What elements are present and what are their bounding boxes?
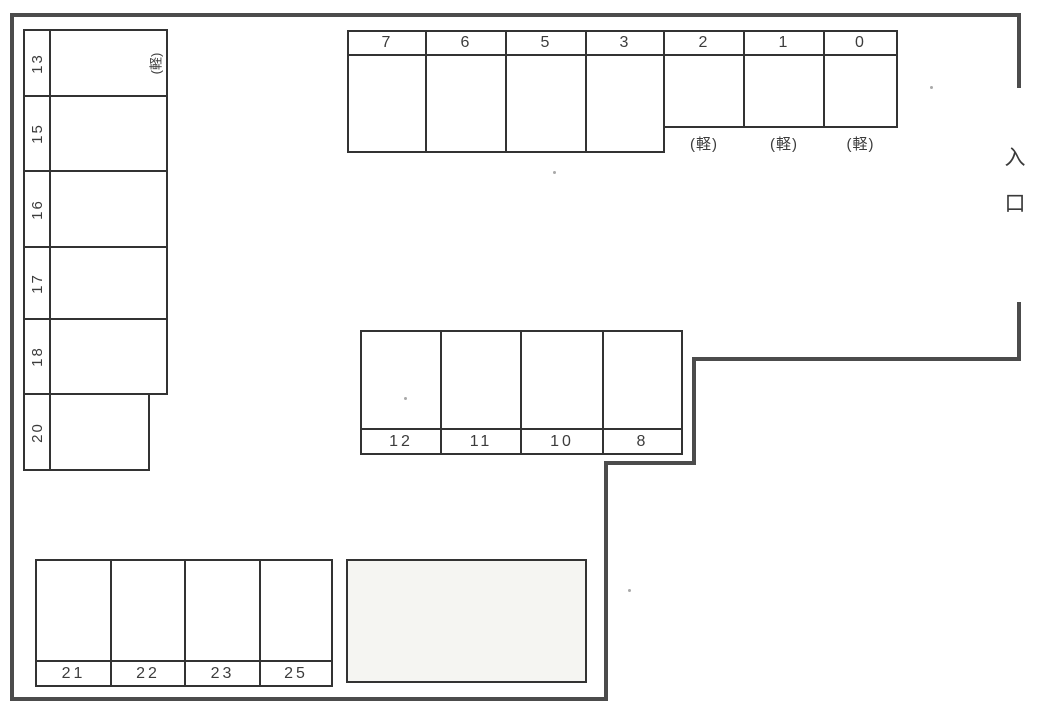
space-number-label: 16 xyxy=(29,199,46,220)
space-number-cell: 11 xyxy=(442,428,520,453)
space-number-label: 0 xyxy=(855,34,866,52)
boundary-wall-top xyxy=(10,13,1021,17)
parking-space-16: 16 xyxy=(23,170,168,248)
boundary-wall-left xyxy=(10,13,14,701)
space-number-label: 6 xyxy=(461,34,472,52)
parking-space-10: 10 xyxy=(520,330,604,455)
space-number-cell: 6 xyxy=(427,32,505,56)
parking-space-3: 3 xyxy=(585,30,665,153)
parking-lot-diagram: 入口 13 (軽) 15 16 17 18 20 7 6 5 3 2 xyxy=(0,0,1046,717)
parking-space-22: 22 xyxy=(110,559,186,687)
space-number-label: 13 xyxy=(29,53,46,74)
kei-label: (軽) xyxy=(823,132,898,154)
parking-space-2: 2 xyxy=(663,30,745,128)
space-number-cell: 7 xyxy=(349,32,425,56)
space-number-cell: 25 xyxy=(261,660,331,685)
space-number-label: 8 xyxy=(637,433,649,451)
parking-space-23: 23 xyxy=(184,559,261,687)
boundary-notch-horizontal-upper xyxy=(692,357,1021,361)
space-number-cell: 2 xyxy=(665,32,743,56)
parking-space-21: 21 xyxy=(35,559,112,687)
space-number-label: 25 xyxy=(284,665,308,683)
space-number-cell: 16 xyxy=(25,172,51,246)
space-number-label: 1 xyxy=(779,34,790,52)
parking-space-1: 1 xyxy=(743,30,825,128)
space-number-cell: 15 xyxy=(25,97,51,170)
boundary-notch-horizontal-lower xyxy=(604,461,696,465)
space-area xyxy=(51,395,148,469)
scan-speck xyxy=(553,171,556,174)
parking-space-25: 25 xyxy=(259,559,333,687)
parking-space-6: 6 xyxy=(425,30,507,153)
space-number-cell: 21 xyxy=(37,660,110,685)
space-number-label: 21 xyxy=(62,665,86,683)
scan-speck xyxy=(404,397,407,400)
boundary-wall-right-upper xyxy=(1017,13,1021,88)
space-number-label: 7 xyxy=(382,34,393,52)
space-number-label: 17 xyxy=(29,273,46,294)
entrance-label: 入口 xyxy=(1003,146,1024,238)
space-number-cell: 22 xyxy=(112,660,184,685)
space-number-label: 5 xyxy=(541,34,552,52)
space-area xyxy=(51,97,166,170)
kei-label: (軽) xyxy=(743,132,825,154)
space-number-cell: 10 xyxy=(522,428,602,453)
parking-space-8: 8 xyxy=(602,330,683,455)
space-number-cell: 5 xyxy=(507,32,585,56)
kei-label: (軽) xyxy=(663,132,745,154)
space-number-label: 3 xyxy=(620,34,631,52)
boundary-wall-bottom xyxy=(10,697,608,701)
space-number-label: 10 xyxy=(550,433,574,451)
kei-badge: (軽) xyxy=(145,31,165,95)
parking-space-12: 12 xyxy=(360,330,442,455)
parking-space-18: 18 xyxy=(23,318,168,395)
parking-space-17: 17 xyxy=(23,246,168,320)
parking-space-7: 7 xyxy=(347,30,427,153)
space-number-label: 11 xyxy=(470,433,493,451)
parking-space-5: 5 xyxy=(505,30,587,153)
space-area xyxy=(51,248,166,318)
space-area: (軽) xyxy=(51,31,166,95)
parking-space-13: 13 (軽) xyxy=(23,29,168,97)
space-number-cell: 1 xyxy=(745,32,823,56)
space-number-cell: 8 xyxy=(604,428,681,453)
space-number-cell: 0 xyxy=(825,32,896,56)
scan-speck xyxy=(628,589,631,592)
space-number-cell: 18 xyxy=(25,320,51,393)
space-number-label: 22 xyxy=(136,665,160,683)
space-number-label: 15 xyxy=(29,123,46,144)
space-number-label: 23 xyxy=(211,665,235,683)
space-number-label: 20 xyxy=(29,422,46,443)
parking-space-15: 15 xyxy=(23,95,168,172)
space-number-cell: 12 xyxy=(362,428,440,453)
unlabeled-area xyxy=(346,559,587,683)
parking-space-11: 11 xyxy=(440,330,522,455)
space-number-cell: 20 xyxy=(25,395,51,469)
scan-speck xyxy=(930,86,933,89)
space-number-cell: 23 xyxy=(186,660,259,685)
space-number-cell: 3 xyxy=(587,32,663,56)
boundary-notch-vertical-left xyxy=(604,461,608,701)
space-number-cell: 13 xyxy=(25,31,51,95)
space-area xyxy=(51,320,166,393)
space-number-label: 2 xyxy=(699,34,710,52)
space-area xyxy=(51,172,166,246)
parking-space-20: 20 xyxy=(23,393,150,471)
space-number-cell: 17 xyxy=(25,248,51,318)
space-number-label: 18 xyxy=(29,346,46,367)
boundary-wall-right-lower xyxy=(1017,302,1021,361)
boundary-notch-vertical-right xyxy=(692,357,696,465)
kei-label: (軽) xyxy=(146,52,165,74)
space-number-label: 12 xyxy=(389,433,413,451)
parking-space-0: 0 xyxy=(823,30,898,128)
